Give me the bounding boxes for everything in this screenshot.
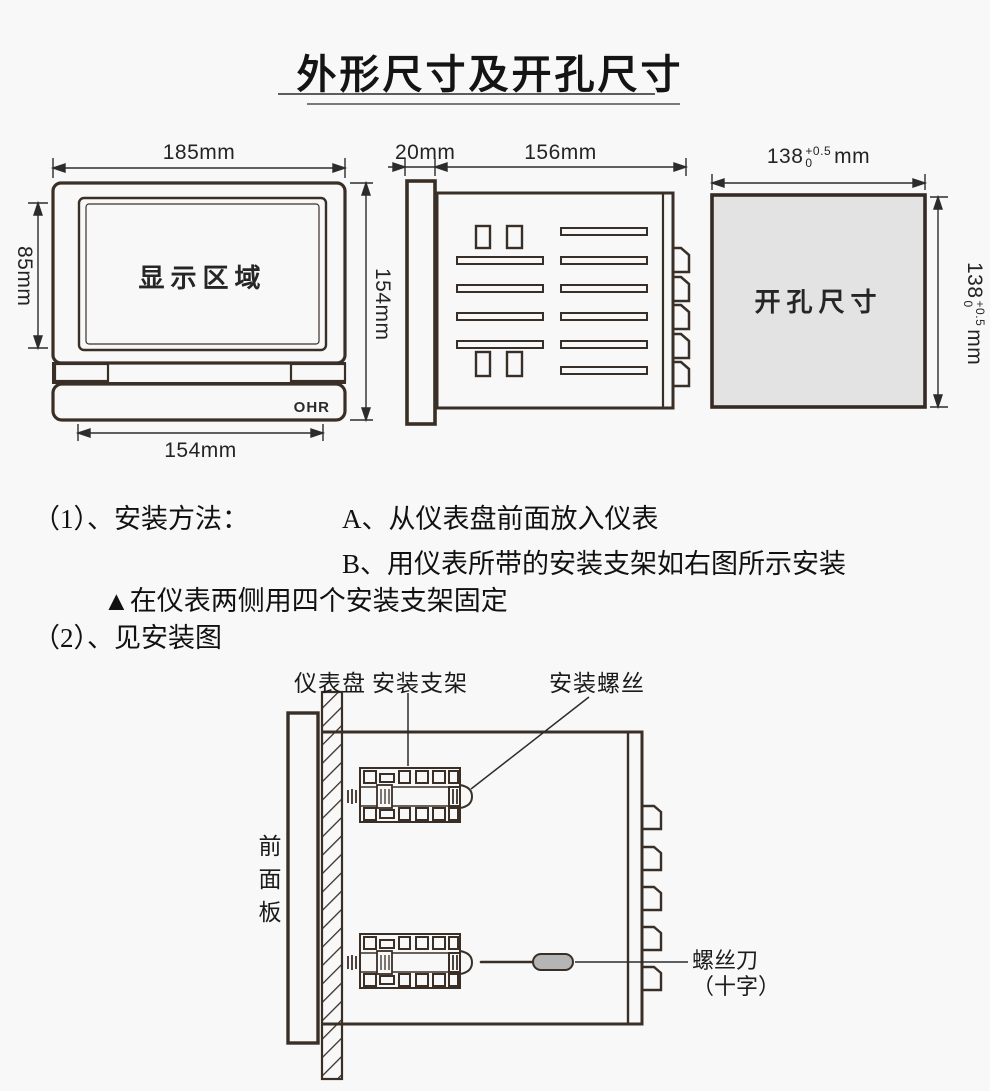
cutout-height-value: 138 bbox=[962, 262, 986, 299]
side-vent-squares bbox=[476, 226, 522, 376]
display-area-label: 显示区域 bbox=[79, 258, 326, 295]
mounting-bracket-upper bbox=[360, 768, 460, 822]
cutout-label: 开孔尺寸 bbox=[712, 282, 925, 319]
dim-front-height: 154mm bbox=[370, 268, 394, 341]
cutout-width-unit: mm bbox=[834, 145, 870, 169]
screwdriver bbox=[481, 954, 573, 970]
install-panel-hatch bbox=[322, 692, 342, 1079]
screwdriver-name: 螺丝刀 bbox=[692, 948, 780, 974]
front-view-drawing bbox=[53, 183, 345, 420]
instruction-step-b: B、用仪表所带的安装支架如右图所示安装 bbox=[342, 542, 846, 581]
instruction-note: ▲在仪表两侧用四个安装支架固定 bbox=[103, 579, 508, 618]
side-bezel bbox=[407, 181, 435, 424]
dim-display-height: 85mm bbox=[12, 246, 36, 306]
dim-body-depth: 156mm bbox=[435, 141, 686, 165]
brand-logo: OHR bbox=[240, 399, 330, 416]
screw-leader-line bbox=[471, 697, 589, 789]
title-underline-1 bbox=[278, 93, 655, 95]
screwdriver-type: （十字） bbox=[692, 974, 780, 1000]
dim-body-width: 154mm bbox=[78, 439, 323, 463]
title-underline-2 bbox=[307, 103, 680, 105]
mounting-bracket-lower bbox=[360, 934, 460, 988]
screwdriver-label: 螺丝刀 （十字） bbox=[692, 948, 780, 1000]
install-body bbox=[322, 732, 642, 1024]
side-terminal-lugs bbox=[673, 248, 689, 386]
screw-label: 安装螺丝 bbox=[549, 664, 645, 698]
install-drawing bbox=[288, 692, 688, 1079]
side-view-drawing bbox=[407, 181, 689, 424]
install-front-panel bbox=[288, 713, 318, 1043]
cutout-height-tol-upper: +0.5 bbox=[974, 301, 986, 327]
panel-label: 仪表盘 bbox=[294, 664, 366, 698]
cutout-height-tol-lower: 0 bbox=[962, 301, 974, 327]
mount-tab-right bbox=[291, 364, 345, 381]
instruction-item1: （1）、安装方法： bbox=[33, 497, 249, 536]
instruction-item2: （2）、见安装图 bbox=[33, 616, 222, 655]
cutout-width-tol-lower: 0 bbox=[805, 157, 831, 169]
manual-page: 外形尺寸及开孔尺寸 185mm 85mm 154mm 154mm 显示区域 OH… bbox=[0, 0, 990, 1091]
instruction-step-a: A、从仪表盘前面放入仪表 bbox=[342, 497, 659, 536]
dim-front-width: 185mm bbox=[53, 141, 345, 165]
mount-tab-left bbox=[55, 364, 108, 381]
cutout-height-unit: mm bbox=[962, 329, 986, 365]
front-panel-label: 前面板 bbox=[250, 834, 284, 933]
cutout-width-value: 138 bbox=[767, 145, 804, 169]
mounting-screw-lower bbox=[348, 951, 472, 974]
mounting-screw-upper bbox=[348, 785, 472, 808]
bracket-label: 安装支架 bbox=[372, 664, 468, 698]
dim-cutout-height: 138+0.50mm bbox=[962, 262, 986, 365]
dim-cutout-width: 138+0.50mm bbox=[712, 145, 925, 169]
page-title: 外形尺寸及开孔尺寸 bbox=[250, 42, 730, 100]
